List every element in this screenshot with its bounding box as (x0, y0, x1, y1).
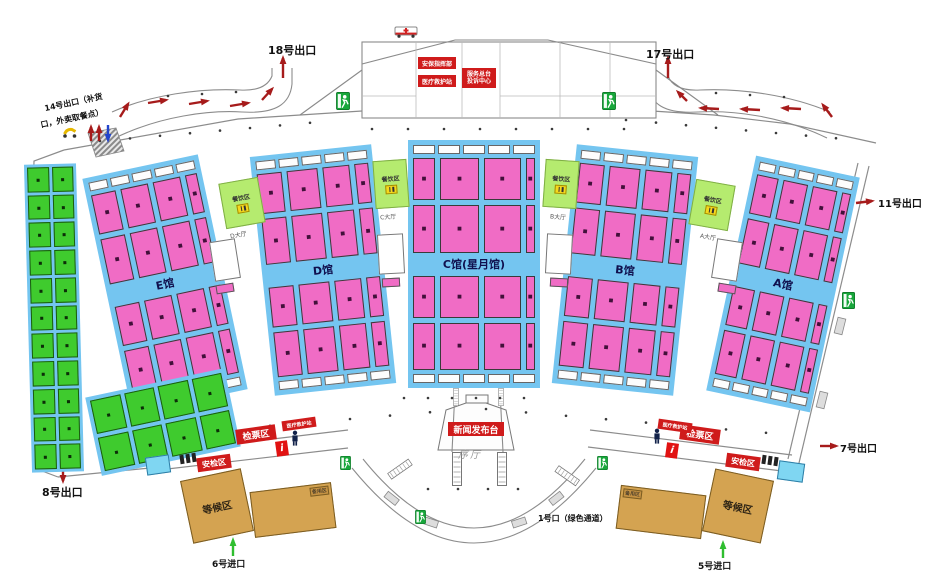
press-platform-banner: 新闻发布台 (448, 422, 504, 436)
booth-grid: ■■■■■■■■ (91, 173, 215, 284)
booth: ■ (303, 326, 339, 374)
dock-room (603, 152, 624, 163)
booth: ■ (775, 180, 808, 225)
booth: ■ (668, 218, 687, 264)
dock-room (278, 379, 299, 390)
exit-7-label: 7号出口 (840, 440, 877, 455)
booth: ■ (354, 163, 372, 205)
booth: ■ (176, 288, 212, 333)
booth-grid: ■■■■■■■■ (413, 276, 535, 371)
dock-room (626, 155, 647, 166)
booth: ■ (526, 205, 535, 252)
utensils-icon (704, 205, 717, 216)
corridor-room (382, 278, 400, 288)
booth: ■ (781, 297, 814, 342)
booth: ■ (559, 321, 588, 368)
booth: ■ (34, 444, 56, 469)
exit-sign-icon (602, 92, 615, 109)
booth: ■ (273, 330, 302, 377)
booth: ■ (261, 217, 290, 264)
booth: ■ (52, 194, 74, 219)
corridor-room (550, 278, 568, 288)
booth: ■ (765, 224, 799, 273)
dock-room (463, 145, 485, 154)
delivery-scooter-icon (63, 129, 76, 137)
dock-room (580, 372, 601, 383)
booth-grid: ■■■■■■■■ (571, 163, 692, 265)
booth: ■ (752, 291, 785, 336)
service-desk-line2: 投诉中心 (467, 78, 491, 85)
booth-grid: ■■■■■■■■ (738, 174, 851, 282)
booth: ■ (805, 186, 838, 231)
dock-room (790, 394, 808, 406)
dock-room (751, 386, 769, 398)
dock-room (732, 382, 750, 394)
booth: ■ (31, 333, 53, 358)
dock-room (301, 155, 322, 166)
dock-room (153, 165, 174, 178)
booth: ■ (157, 380, 194, 420)
hall-label: C馆(星月馆) (413, 257, 535, 272)
dock-room (175, 160, 196, 173)
dock-room (603, 374, 624, 385)
dock-room (347, 150, 368, 161)
dock-room (626, 377, 647, 388)
dock-room (110, 174, 131, 187)
entrance-6-label: 6号进口 (212, 557, 245, 570)
lobby-label: B大厅 (550, 211, 567, 221)
dock-room (712, 378, 730, 390)
utensils-icon (385, 185, 398, 195)
booth: ■ (54, 277, 76, 302)
booth: ■ (834, 192, 851, 233)
booth: ■ (191, 373, 228, 413)
dock-room (672, 159, 693, 170)
booth: ■ (91, 190, 124, 235)
dock-room (438, 145, 460, 154)
dock-room (488, 374, 510, 383)
booth: ■ (526, 276, 535, 318)
booth: ■ (124, 387, 161, 427)
exit-sign-icon (597, 456, 607, 469)
booth: ■ (371, 321, 390, 367)
exhibition-floorplan: ■■■■■■■■ E馆 ■■■■■■■■ ■■■■■■■■ D馆 ■■■■■■■… (0, 0, 940, 585)
dining-area: 餐饮区 (218, 177, 265, 229)
booth: ■ (56, 333, 78, 358)
booth: ■ (794, 230, 828, 279)
booth: ■ (144, 294, 180, 339)
lobby-label: C大厅 (380, 211, 397, 221)
exit-17-label: 17号出口 (646, 46, 694, 62)
dock-room (413, 374, 435, 383)
luggage-deposit-right (777, 460, 805, 482)
booth: ■ (624, 328, 655, 376)
booth: ■ (413, 276, 435, 318)
reserve-area-tag: 备用区 (623, 488, 643, 499)
booth: ■ (413, 205, 435, 252)
booth: ■ (90, 394, 127, 434)
booth: ■ (656, 331, 675, 377)
booth: ■ (165, 417, 202, 457)
luggage-deposit-left (145, 454, 171, 475)
booth: ■ (600, 211, 636, 259)
dock-room (324, 152, 345, 163)
booth: ■ (153, 177, 189, 222)
dining-area-label: 餐饮区 (552, 173, 571, 183)
booth: ■ (334, 278, 365, 321)
booth: ■ (576, 163, 605, 206)
hall-C: ■■■■■■■■ C馆(星月馆) ■■■■■■■■ (408, 140, 540, 388)
exit-8-label: 8号出口 (42, 484, 83, 500)
dock-room (513, 145, 535, 154)
dock-room (88, 179, 109, 192)
dock-room (324, 374, 345, 385)
dock-room (463, 374, 485, 383)
booth: ■ (162, 221, 199, 271)
booth: ■ (484, 205, 521, 252)
utensils-icon (554, 185, 567, 195)
booth: ■ (199, 410, 236, 450)
booth: ■ (749, 174, 779, 218)
booth: ■ (771, 341, 805, 390)
west-booth-strip: ■■■■■■■■■■■■■■■■■■■■■■ (24, 163, 84, 472)
dining-area: 餐饮区 (542, 159, 579, 209)
booth: ■ (810, 303, 827, 344)
booth: ■ (55, 305, 77, 330)
dock-room (557, 370, 578, 381)
booth: ■ (440, 276, 479, 318)
booth: ■ (526, 323, 535, 370)
booth-grid: ■■■■■■■■ (269, 276, 390, 378)
booth: ■ (413, 158, 435, 200)
booth: ■ (31, 306, 53, 331)
booth: ■ (57, 360, 79, 385)
waiting-area-left: 等候区 (180, 468, 254, 543)
dock-room (438, 374, 460, 383)
utensils-icon (236, 203, 249, 214)
booth: ■ (641, 170, 672, 213)
dining-area-label: 餐饮区 (381, 173, 400, 183)
booth: ■ (33, 389, 55, 414)
dock-room (513, 374, 535, 383)
booth: ■ (115, 301, 148, 346)
booth: ■ (53, 222, 75, 247)
booth: ■ (269, 285, 298, 328)
dining-area-label: 餐饮区 (703, 194, 722, 206)
booth: ■ (715, 330, 746, 379)
booth: ■ (286, 168, 321, 211)
service-desk-banner: 服务总台 投诉中心 (462, 68, 496, 88)
dining-area-label: 餐饮区 (231, 192, 250, 204)
medical-station-banner: 医疗救护站 (418, 75, 456, 87)
dock-room (413, 145, 435, 154)
booth: ■ (484, 158, 521, 200)
service-desk-line1: 服务总台 (467, 71, 491, 78)
exit-sign-icon (336, 92, 349, 109)
dock-room (777, 166, 795, 178)
booth: ■ (673, 173, 691, 215)
corridor-core (545, 233, 573, 274)
booth: ■ (120, 183, 156, 228)
booth: ■ (29, 250, 51, 275)
booth-grid: ■■■■■■■■ (413, 158, 535, 253)
dock-room (770, 390, 788, 402)
security-guard-icon (292, 431, 297, 446)
booth: ■ (605, 166, 640, 209)
booth: ■ (322, 165, 353, 208)
entrance-5-label: 5号进口 (698, 559, 731, 572)
booth: ■ (741, 335, 775, 384)
booth: ■ (130, 228, 167, 278)
booth: ■ (413, 323, 435, 370)
dock-room (816, 174, 834, 186)
exit-11-label: 11号出口 (878, 195, 922, 210)
booth: ■ (440, 205, 479, 252)
booth: ■ (440, 158, 479, 200)
booth: ■ (30, 278, 52, 303)
booth: ■ (28, 195, 50, 220)
dock-room (255, 159, 276, 170)
booth: ■ (185, 173, 205, 215)
booth: ■ (98, 432, 135, 472)
ambulance-icon (395, 27, 417, 38)
dining-area: 餐饮区 (688, 179, 735, 231)
dock-room (488, 145, 510, 154)
booth: ■ (526, 158, 535, 200)
dining-area: 餐饮区 (372, 159, 409, 209)
dock-room (580, 150, 601, 161)
dock-room (649, 157, 670, 168)
booth: ■ (58, 416, 80, 441)
booth: ■ (593, 279, 628, 322)
dock-room (797, 170, 815, 182)
booth: ■ (440, 323, 479, 370)
booth: ■ (298, 281, 333, 324)
exit-sign-icon (842, 292, 854, 308)
booth: ■ (661, 286, 679, 328)
booth: ■ (571, 208, 600, 255)
booth: ■ (327, 210, 358, 258)
dock-room (278, 157, 299, 168)
booth: ■ (738, 219, 769, 268)
dock-room (836, 178, 854, 190)
reserve-area-tag: 备用区 (309, 486, 329, 497)
dock-row (413, 374, 535, 383)
dock-room (301, 377, 322, 388)
dock-room (370, 370, 391, 381)
booth: ■ (564, 276, 593, 319)
booth: ■ (59, 444, 81, 469)
booth: ■ (32, 361, 54, 386)
booth: ■ (484, 276, 521, 318)
exit-sign-icon (340, 456, 350, 469)
booth: ■ (484, 323, 521, 370)
security-hq-banner: 安保指挥部 (418, 57, 456, 69)
dock-room (758, 162, 776, 174)
booth: ■ (34, 417, 56, 442)
booth: ■ (27, 167, 49, 192)
dock-room (347, 372, 368, 383)
information-icon: i (275, 440, 289, 457)
booth: ■ (100, 235, 134, 284)
booth-grid: ■■■■■■■■ (257, 163, 378, 265)
booth: ■ (636, 215, 667, 263)
booth: ■ (54, 250, 76, 275)
foyer-label: 序厅 (458, 446, 482, 461)
booth: ■ (52, 166, 74, 191)
booth: ■ (291, 213, 327, 261)
dock-room (132, 170, 153, 183)
security-guard-icon (654, 429, 659, 444)
dock-room (649, 379, 670, 390)
booth: ■ (630, 282, 661, 325)
booth-grid: ■■■■■■■■ (715, 285, 828, 393)
dock-row (413, 145, 535, 154)
booth: ■ (359, 208, 378, 254)
booth-grid: ■■■■■■■■ (559, 276, 680, 378)
exit-18-label: 18号出口 (268, 42, 316, 58)
corridor-core (377, 233, 405, 274)
entrance-1-green-channel-label: 1号口（绿色通道） (538, 513, 608, 524)
booth: ■ (339, 323, 370, 371)
exit-sign-icon (415, 510, 425, 523)
information-icon: i (665, 442, 679, 459)
booth: ■ (29, 223, 51, 248)
booth: ■ (588, 324, 624, 372)
booth: ■ (57, 388, 79, 413)
